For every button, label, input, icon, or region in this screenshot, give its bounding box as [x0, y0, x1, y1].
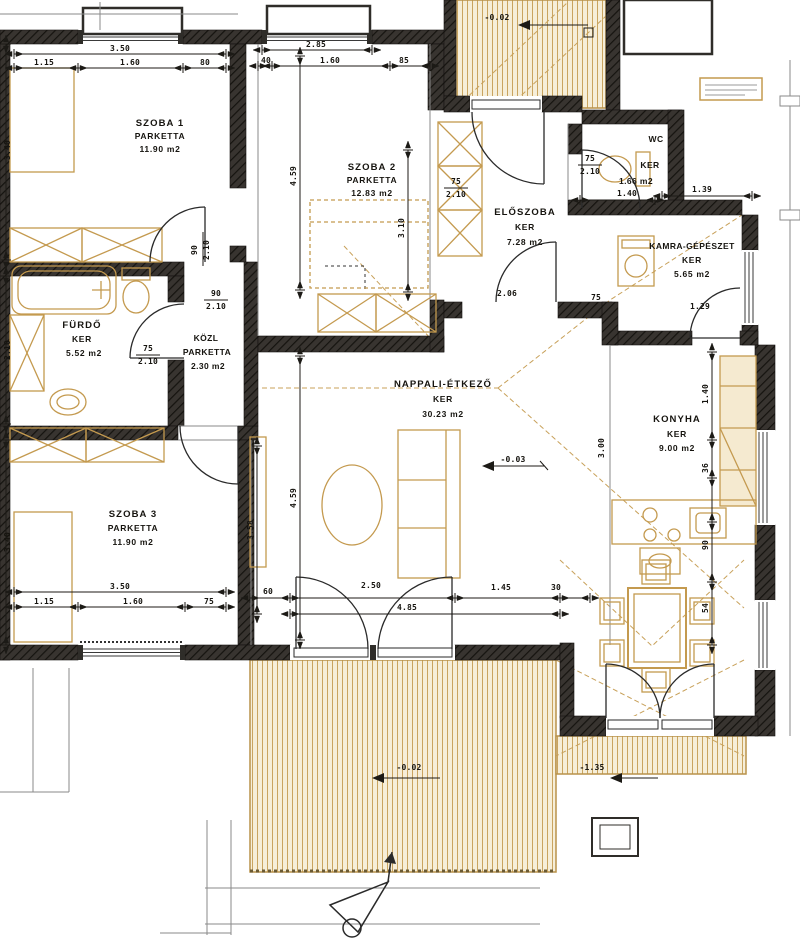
dimension-label: 2.10: [446, 190, 466, 199]
room-area: 12.83 m2: [351, 188, 393, 198]
room-label-szoba3: SZOBA 3 PARKETTA 11.90 m2: [108, 509, 159, 547]
french-door: [290, 645, 455, 660]
room-label-szoba2: SZOBA 2 PARKETTA 12.83 m2: [347, 162, 398, 198]
window-kamra-east: [742, 250, 758, 325]
cabinet-row-szoba1: [10, 228, 162, 262]
dimension-label: 1.45: [491, 583, 511, 592]
dimension-label: 85: [399, 56, 409, 65]
dimension-label: 1.60: [320, 56, 340, 65]
dimension-label: 90: [211, 289, 221, 298]
window-szoba3: [78, 642, 185, 660]
dimension-label: -0.03: [500, 455, 525, 464]
room-floor: PARKETTA: [183, 347, 231, 357]
room-area: 11.90 m2: [112, 537, 153, 547]
dimension-label: 1.40: [701, 384, 710, 404]
dimension-label: 90: [190, 245, 199, 255]
room-area: 5.65 m2: [674, 269, 710, 279]
szoba2-bed: [310, 200, 428, 288]
ceiling-dash-mark: [325, 266, 365, 290]
dimension-label: 3.50: [110, 44, 130, 53]
room-label-furdo: FÜRDŐ KER 5.52 m2: [62, 319, 102, 358]
dimension-label: 2.10: [202, 240, 211, 260]
szoba1-wardrobe: [10, 68, 74, 172]
dimension-label: 2.85: [306, 40, 326, 49]
dimension-label: 2.50: [361, 581, 381, 590]
dimension-label: 60: [263, 587, 273, 596]
deck-column: [592, 818, 638, 856]
dimension-label: 1.29: [690, 302, 710, 311]
dimension-label: 2.10: [206, 302, 226, 311]
shutter-box-2: [267, 6, 370, 34]
room-name: FÜRDŐ: [62, 319, 101, 331]
konyha-counter: [612, 356, 756, 574]
dimension-label: 4.85: [397, 603, 417, 612]
dimension-label: 3.50: [110, 582, 130, 591]
dimension-label: 80: [200, 58, 210, 67]
dimension-label: 2.10: [580, 167, 600, 176]
room-area: 5.52 m2: [66, 348, 102, 358]
door-furdo: [130, 304, 184, 358]
szoba3-wardrobe: [14, 512, 72, 642]
room-floor: PARKETTA: [108, 523, 159, 533]
room-name: SZOBA 3: [109, 509, 158, 520]
dimension-label: 2.06: [497, 289, 517, 298]
dimension-label: -0.02: [484, 13, 509, 22]
walls: [0, 0, 775, 736]
washbasin: [50, 389, 86, 415]
dimension-label: 1.60: [123, 597, 143, 606]
coffee-table: [322, 465, 382, 545]
room-floor: KER: [667, 429, 687, 439]
dimension-label: 4.59: [289, 166, 298, 186]
dimension-label: 2.10: [3, 340, 12, 360]
floor-plan-page: SZOBA 1 PARKETTA 11.90 m2 SZOBA 2 PARKET…: [0, 0, 800, 940]
dimension-label: 75: [585, 154, 595, 163]
room-area: 1.66 m2: [619, 176, 653, 186]
dimension-label: 3.10: [397, 218, 406, 238]
door-kamra-konyha: [690, 288, 740, 338]
dimension-label: 1.40: [617, 189, 637, 198]
window-konyha-east: [755, 430, 775, 525]
dimension-label: 1.15: [34, 597, 54, 606]
dimension-label: -0.02: [396, 763, 421, 772]
dimension-label: 75: [204, 597, 214, 606]
room-floor: KER: [682, 255, 702, 265]
dimension-label: 1.39: [692, 185, 712, 194]
room-name: SZOBA 1: [136, 118, 185, 129]
bay-door: [606, 716, 714, 736]
dimension-label: 75: [591, 293, 601, 302]
top-terrace-deck: [456, 0, 606, 108]
room-label-szoba1: SZOBA 1 PARKETTA 11.90 m2: [135, 118, 186, 154]
room-floor: KER: [640, 160, 659, 170]
door-szoba3: [180, 426, 238, 484]
title-stamp-box: [700, 78, 762, 100]
dimension-label: -1.35: [579, 763, 604, 772]
dimension-label: 4.59: [289, 488, 298, 508]
room-name: WC: [649, 134, 664, 144]
dining-set: [600, 560, 714, 692]
room-label-konyha: KONYHA KER 9.00 m2: [653, 414, 701, 453]
cabinet-row-szoba2: [318, 294, 436, 332]
room-floor: KER: [433, 394, 453, 404]
door-entrance: [472, 112, 544, 184]
room-name: ELŐSZOBA: [494, 206, 556, 218]
room-area: 9.00 m2: [659, 443, 695, 453]
washer-furdo: [10, 315, 44, 391]
sofa: [398, 430, 460, 578]
dimension-label: 75: [451, 177, 461, 186]
room-label-kozl: KÖZL PARKETTA 2.30 m2: [183, 333, 231, 371]
room-label-nappali: NAPPALI-ÉTKEZŐ KER 30.23 m2: [394, 378, 492, 419]
room-name: KAMRA-GÉPÉSZET: [649, 241, 735, 251]
window-bay-east: [755, 600, 775, 670]
dimension-label: 54: [701, 603, 710, 613]
dimension-label: 3.40: [3, 140, 12, 160]
room-floor: KER: [515, 222, 535, 232]
dimension-label: 2.10: [138, 357, 158, 366]
dimension-label: 30: [551, 583, 561, 592]
dimension-label: 75: [143, 344, 153, 353]
room-area: 11.90 m2: [139, 144, 180, 154]
dimension-label: 3.00: [597, 438, 606, 458]
floor-plan-svg: SZOBA 1 PARKETTA 11.90 m2 SZOBA 2 PARKET…: [0, 0, 800, 940]
dimension-label: 90: [701, 540, 710, 550]
room-name: SZOBA 2: [348, 162, 397, 173]
room-area: 7.28 m2: [507, 237, 543, 247]
room-area: 30.23 m2: [422, 409, 464, 419]
dimension-label: 3.58: [246, 520, 255, 540]
shaft-boxes: [438, 122, 482, 256]
shutter-box-1: [83, 8, 182, 34]
dimension-label: 3.40: [3, 532, 12, 552]
entrance-door: [470, 96, 542, 112]
dimension-label: 40: [261, 56, 271, 65]
room-floor: KER: [72, 334, 92, 344]
room-label-eloszoba: ELŐSZOBA KER 7.28 m2: [494, 206, 556, 247]
dimension-label: 1.60: [120, 58, 140, 67]
room-floor: PARKETTA: [347, 175, 398, 185]
ne-structure: [624, 0, 712, 54]
room-area: 2.30 m2: [191, 361, 225, 371]
room-name: NAPPALI-ÉTKEZŐ: [394, 378, 492, 390]
room-label-kamra: KAMRA-GÉPÉSZET KER 5.65 m2: [649, 241, 735, 279]
dimension-label: 1.15: [34, 58, 54, 67]
room-name: KONYHA: [653, 414, 701, 425]
room-floor: PARKETTA: [135, 131, 186, 141]
room-name: KÖZL: [194, 333, 219, 343]
dimension-label: 36: [701, 463, 710, 473]
